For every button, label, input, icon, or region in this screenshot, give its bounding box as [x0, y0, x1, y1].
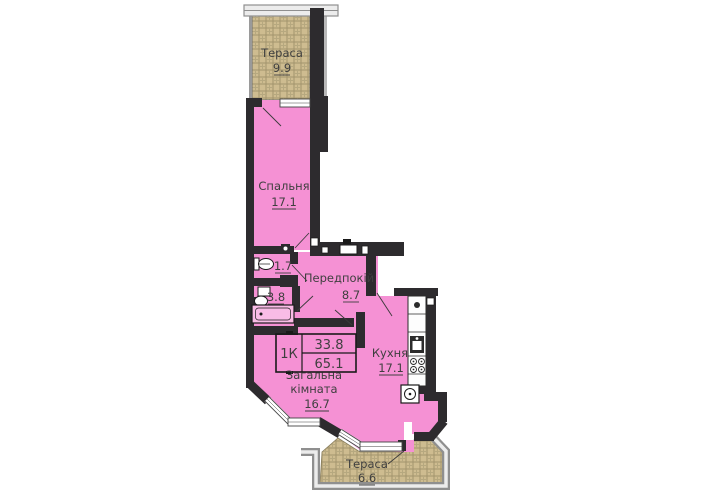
- wall-alcove-right: [438, 392, 447, 422]
- kitchen-sink-basin: [413, 341, 422, 350]
- terrace-bottom-label: Тераса: [345, 457, 388, 471]
- stamp-tick-top: [286, 331, 293, 334]
- bedroom-label: Спальня: [258, 179, 309, 193]
- floor-plan-page: 1К 33.8 65.1 Тераса 9.9 Спальня 17.1 1.7…: [0, 0, 708, 500]
- boiler-dot: [409, 393, 412, 396]
- fridge-icon: [414, 302, 420, 308]
- floor-plan: 1К 33.8 65.1 Тераса 9.9 Спальня 17.1 1.7…: [0, 0, 708, 500]
- stamp-type: 1К: [280, 347, 298, 362]
- terrace-bottom-area: 6.6: [358, 471, 376, 485]
- terrace-top-left-rail: [249, 16, 252, 100]
- bedroom-area: 17.1: [271, 195, 297, 209]
- bathroom-area: 3.8: [267, 290, 285, 304]
- vent-bedroom-wall: [311, 238, 318, 246]
- wall-bedroom-top-jamb: [246, 98, 262, 107]
- kitchen-label: Кухня: [372, 346, 408, 360]
- living-room-area: 16.7: [304, 397, 330, 411]
- wall-bedroom-right-lower: [310, 152, 320, 252]
- wall-left-outer: [246, 98, 254, 388]
- entrance-niche: [362, 246, 368, 254]
- terrace-top-label: Тераса: [260, 46, 303, 60]
- wall-kitchen-left-stub: [356, 312, 365, 348]
- stove-burner-dot3: [413, 369, 415, 371]
- stove-burner-dot1: [413, 361, 415, 363]
- stove-burner-dot2: [421, 361, 423, 363]
- bedroom-floor: [250, 100, 312, 250]
- living-room-label-line1: Загальна: [286, 368, 342, 382]
- terrace-top-area: 9.9: [273, 61, 291, 75]
- wall-vent-shaft: [280, 275, 298, 287]
- vent-entrance: [322, 247, 328, 253]
- living-room-label-line2: кімната: [290, 382, 337, 396]
- hallway-area: 8.7: [342, 288, 360, 302]
- stove-burner-dot4: [421, 369, 423, 371]
- bathtub-drain: [260, 313, 263, 316]
- riser-circle: [284, 247, 288, 251]
- entrance-door-handle: [343, 239, 351, 244]
- kitchen-area: 17.1: [378, 361, 404, 375]
- wc-area: 1.7: [274, 259, 292, 273]
- wall-kitchen-top-left: [366, 288, 376, 296]
- kitchen-sink-tap: [416, 337, 419, 340]
- entrance-door: [340, 245, 357, 254]
- wall-bedroom-right-upper: [310, 96, 328, 152]
- wall-terrace-right: [310, 8, 324, 100]
- vent-kitchen-wall: [427, 298, 434, 305]
- hallway-label: Передпокій: [304, 271, 374, 285]
- terrace-top-right-line: [324, 12, 327, 100]
- stamp-living-area: 33.8: [315, 338, 344, 353]
